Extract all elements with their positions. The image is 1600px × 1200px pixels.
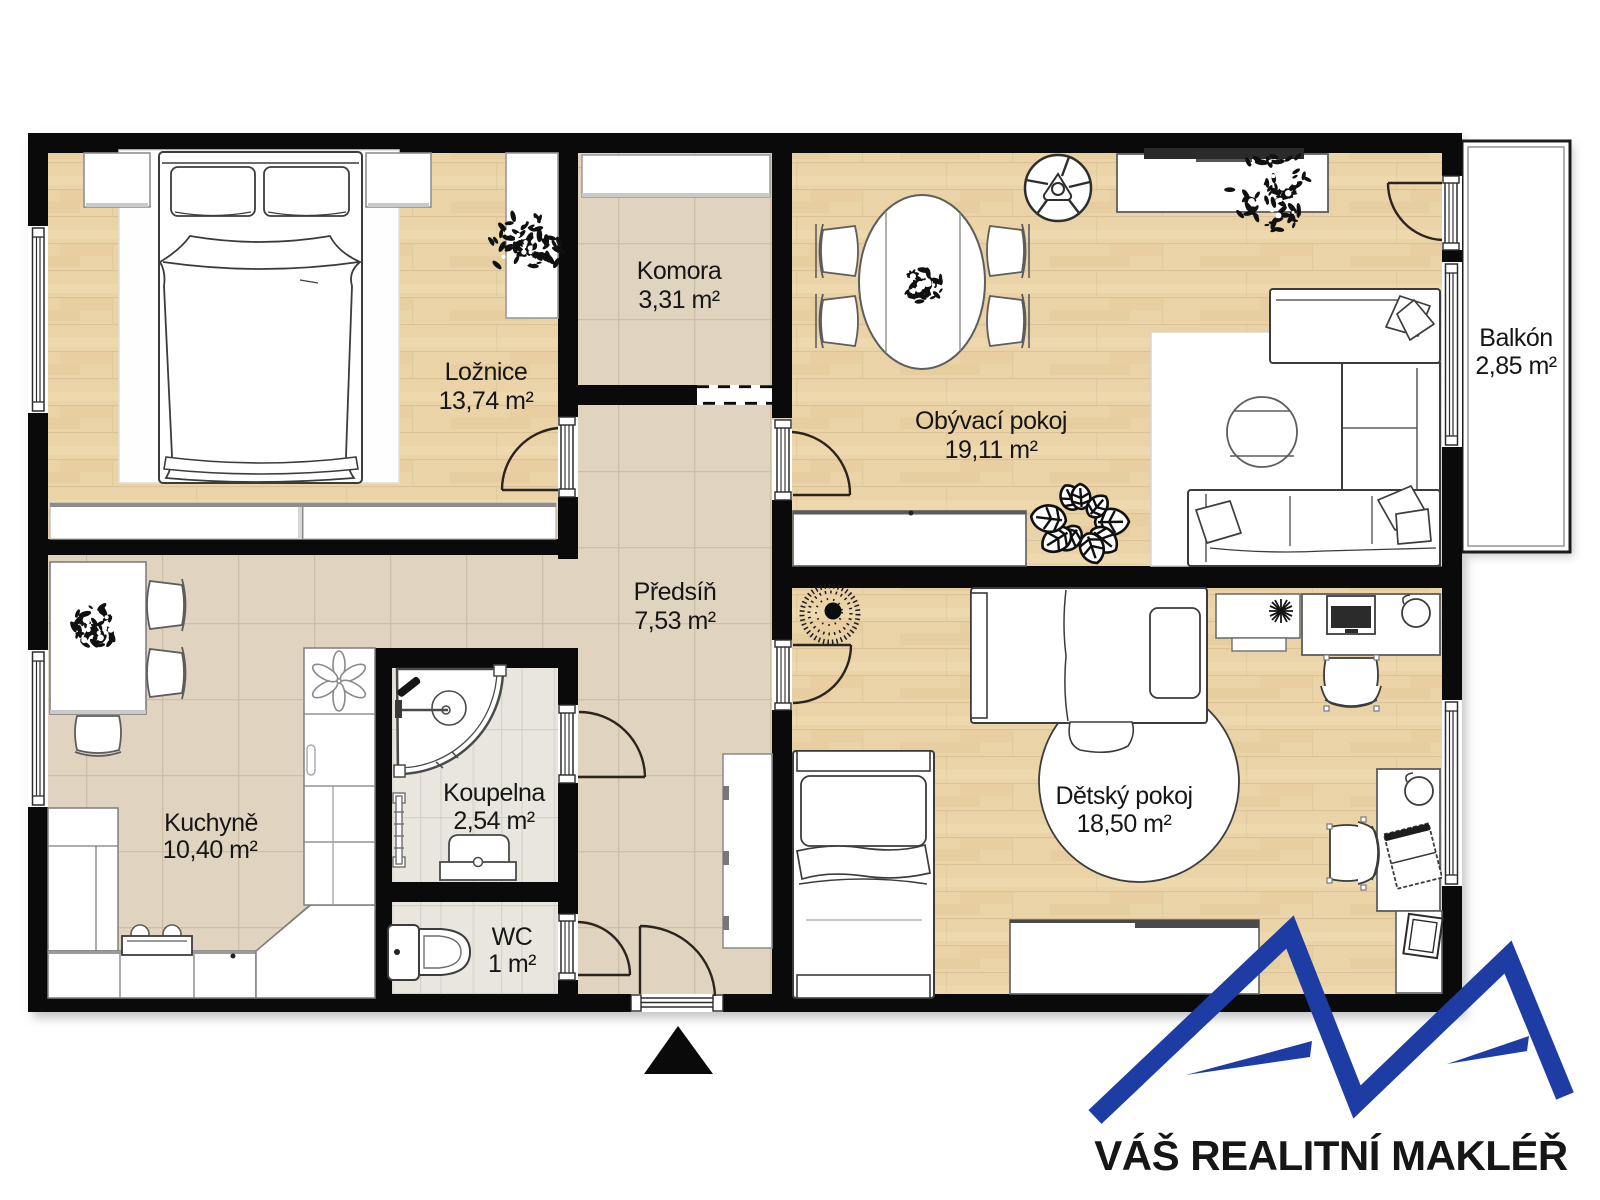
- svg-text:2,54 m²: 2,54 m²: [453, 807, 534, 835]
- svg-text:Dětský pokoj: Dětský pokoj: [1055, 782, 1192, 810]
- svg-text:18,50 m²: 18,50 m²: [1077, 810, 1172, 838]
- svg-text:Kuchyně: Kuchyně: [164, 809, 258, 837]
- svg-text:Koupelna: Koupelna: [443, 779, 545, 807]
- svg-text:WC: WC: [492, 923, 533, 951]
- svg-text:VÁŠ REALITNÍ MAKLÉŘ: VÁŠ REALITNÍ MAKLÉŘ: [1094, 1131, 1568, 1179]
- svg-text:7,53 m²: 7,53 m²: [634, 607, 715, 635]
- svg-text:1 m²: 1 m²: [488, 950, 536, 978]
- svg-text:Balkón: Balkón: [1479, 324, 1552, 352]
- svg-text:2,85 m²: 2,85 m²: [1475, 352, 1556, 380]
- svg-text:3,31 m²: 3,31 m²: [638, 286, 719, 314]
- svg-text:13,74 m²: 13,74 m²: [439, 387, 534, 415]
- svg-text:Ložnice: Ložnice: [445, 358, 528, 386]
- svg-text:Předsíň: Předsíň: [634, 578, 717, 606]
- svg-text:10,40 m²: 10,40 m²: [163, 836, 258, 864]
- svg-text:19,11 m²: 19,11 m²: [945, 436, 1038, 464]
- svg-text:Obývací pokoj: Obývací pokoj: [915, 407, 1067, 435]
- svg-text:Komora: Komora: [637, 257, 722, 285]
